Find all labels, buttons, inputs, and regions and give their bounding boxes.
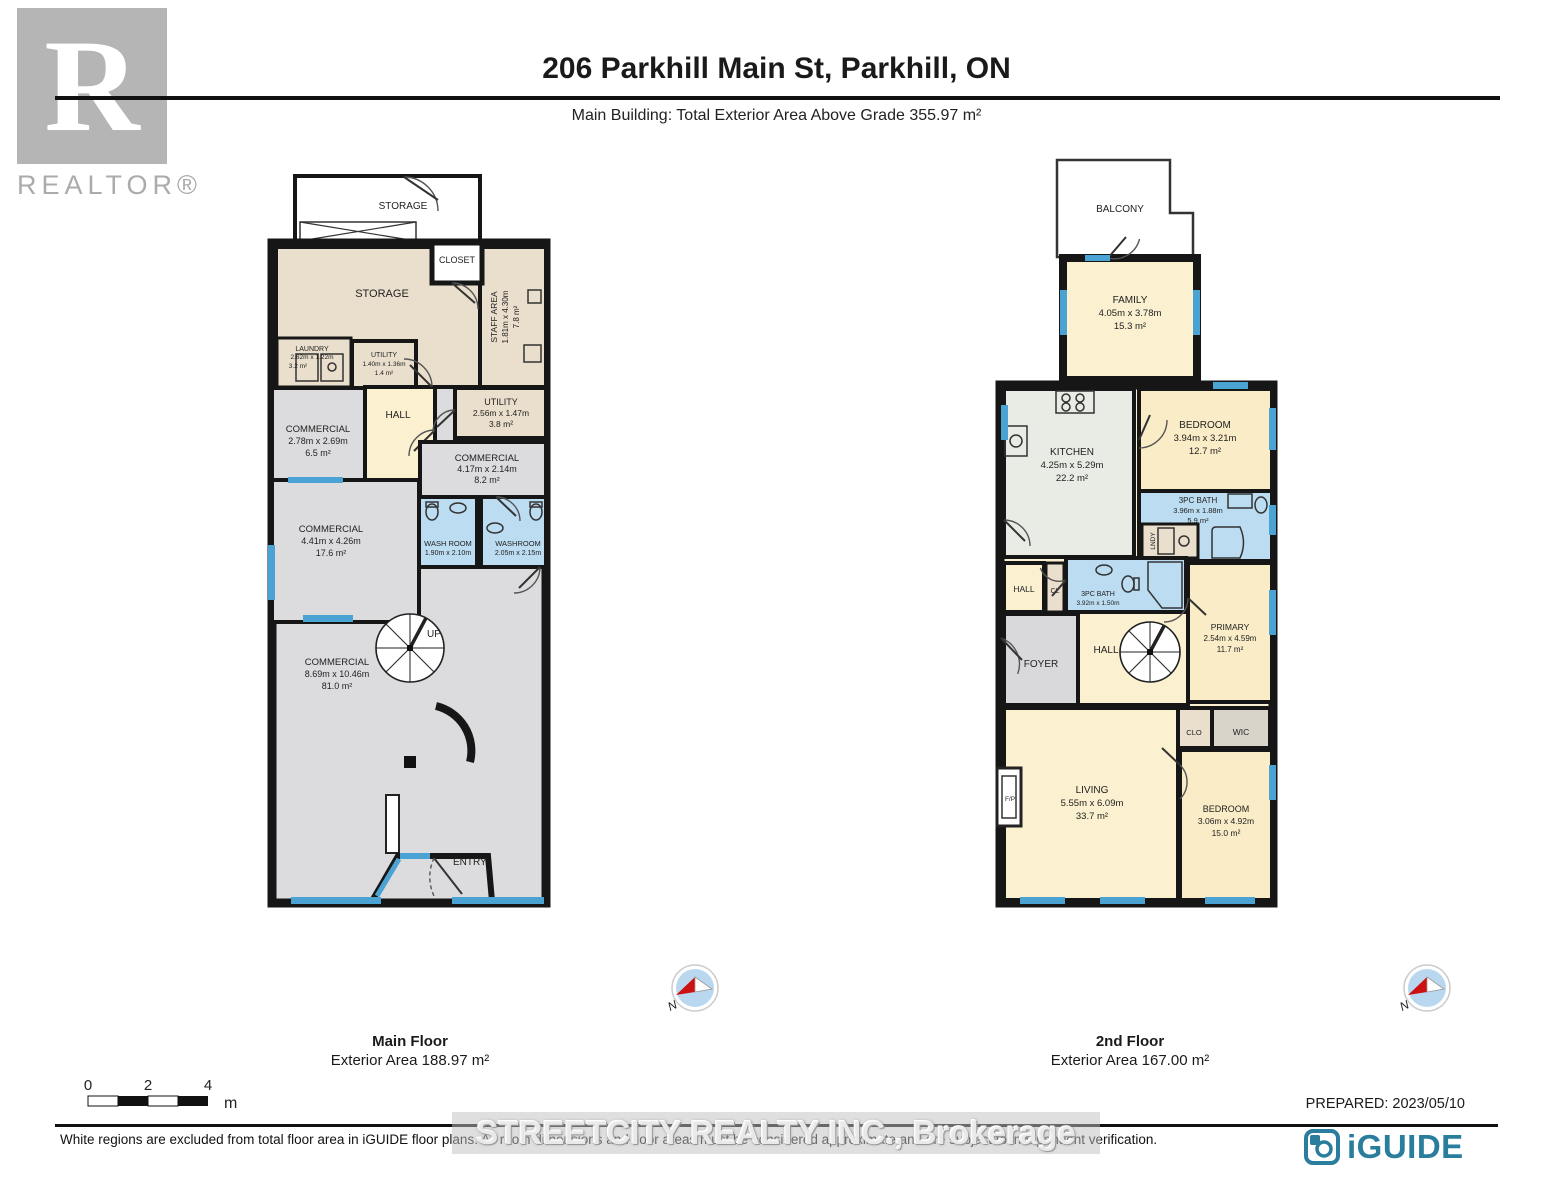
room-hall-small: HALL	[1004, 563, 1044, 612]
room-bath-1: 3PC BATH 3.96m x 1.88m 5.9 m² LNDY	[1139, 491, 1272, 561]
label-commercial-3-area: 17.6 m²	[316, 548, 347, 558]
label-bath-1-dims: 3.96m x 1.88m	[1173, 506, 1223, 515]
label-bedroom-1-area: 12.7 m²	[1189, 446, 1221, 457]
label-utility-small-area: 1.4 m²	[375, 370, 394, 377]
label-hall: HALL	[385, 410, 410, 421]
label-commercial-3: COMMERCIAL	[299, 524, 363, 535]
compass-second-floor: N	[1396, 962, 1456, 1020]
brokerage-watermark: STREETCITY REALTY INC., Brokerage	[452, 1112, 1100, 1154]
room-family: FAMILY 4.05m x 3.78m 15.3 m²	[1060, 233, 1200, 380]
label-bedroom-2: BEDROOM	[1203, 804, 1250, 814]
room-washroom-1: WASH ROOM 1.90m x 2.10m	[419, 497, 477, 567]
room-cl: CL	[1046, 563, 1064, 612]
label-kitchen-area: 22.2 m²	[1056, 473, 1088, 484]
room-washroom-2: WASHROOM 2.05m x 2.15m	[481, 497, 546, 567]
main-floor-caption: Main Floor Exterior Area 188.97 m²	[255, 1032, 565, 1070]
second-floor-area: Exterior Area 167.00 m²	[980, 1051, 1280, 1070]
label-storage: STORAGE	[355, 288, 409, 300]
label-laundry: LAUNDRY	[295, 346, 329, 353]
label-commercial-1: COMMERCIAL	[286, 424, 350, 435]
scale-bar: 0 2 4 m	[82, 1076, 252, 1120]
scale-tick-4: 4	[204, 1077, 212, 1094]
room-storage-exterior: STORAGE	[295, 176, 480, 243]
main-floor-area: Exterior Area 188.97 m²	[255, 1051, 565, 1070]
iguide-logo-word: iGUIDE	[1347, 1128, 1464, 1166]
label-primary: PRIMARY	[1211, 622, 1250, 632]
room-bedroom-2: BEDROOM 3.06m x 4.92m 15.0 m²	[1162, 748, 1272, 900]
label-family-area: 15.3 m²	[1114, 321, 1146, 332]
label-balcony: BALCONY	[1096, 204, 1144, 215]
second-floor-title: 2nd Floor	[980, 1032, 1280, 1051]
page-title: 206 Parkhill Main St, Parkhill, ON	[0, 52, 1553, 86]
room-bedroom-1: BEDROOM 3.94m x 3.21m 12.7 m²	[1139, 389, 1272, 491]
label-washroom-2-dims: 2.05m x 2.15m	[495, 550, 541, 557]
label-commercial-4: COMMERCIAL	[305, 657, 369, 668]
label-primary-dims: 2.54m x 4.59m	[1204, 634, 1257, 643]
label-laundry-area: 3.2 m²	[289, 363, 308, 370]
label-kitchen: KITCHEN	[1050, 447, 1094, 458]
compass-main-floor: N	[664, 962, 724, 1020]
spiral-stair-dn	[1120, 622, 1180, 682]
label-commercial-2: COMMERCIAL	[455, 453, 519, 464]
label-bath-2-dims: 3.92m x 1.50m	[1077, 600, 1120, 607]
room-balcony: BALCONY	[1057, 160, 1193, 257]
wall-stub	[386, 795, 399, 853]
label-primary-area: 11.7 m²	[1217, 645, 1244, 654]
label-bath-1: 3PC BATH	[1179, 496, 1218, 505]
label-entry: ENTRY	[453, 857, 487, 868]
label-utility: UTILITY	[484, 397, 518, 407]
label-staff-area-area: 7.8 m²	[512, 305, 521, 328]
second-floor-caption: 2nd Floor Exterior Area 167.00 m²	[980, 1032, 1280, 1070]
label-utility-area: 3.8 m²	[489, 419, 513, 429]
label-laundry-dims: 2.62m x 1.22m	[291, 354, 334, 361]
label-bedroom-1-dims: 3.94m x 3.21m	[1174, 433, 1237, 444]
room-commercial-2: COMMERCIAL 4.17m x 2.14m 8.2 m²	[420, 442, 546, 497]
room-hall-dn: HALL DN	[1078, 612, 1188, 705]
label-utility-small-dims: 1.40m x 1.36m	[363, 361, 406, 368]
label-utility-small: UTILITY	[371, 352, 397, 359]
main-floor-title: Main Floor	[255, 1032, 565, 1051]
room-laundry: LAUNDRY 2.62m x 1.22m 3.2 m²	[277, 338, 351, 387]
iguide-logo-icon	[1303, 1128, 1341, 1166]
label-commercial-2-area: 8.2 m²	[474, 475, 500, 485]
fireplace: F/P	[997, 768, 1021, 826]
label-foyer: FOYER	[1024, 659, 1058, 670]
label-utility-dims: 2.56m x 1.47m	[473, 408, 529, 418]
scale-tick-0: 0	[84, 1077, 92, 1094]
room-commercial-3: COMMERCIAL 4.41m x 4.26m 17.6 m²	[272, 480, 419, 622]
label-commercial-1-area: 6.5 m²	[305, 448, 331, 458]
iguide-logo: iGUIDE	[1303, 1128, 1464, 1166]
label-living-area: 33.7 m²	[1076, 811, 1108, 822]
label-living: LIVING	[1076, 785, 1109, 796]
label-clo: CLO	[1186, 728, 1202, 737]
label-family: FAMILY	[1113, 295, 1148, 306]
label-washroom-2: WASHROOM	[495, 539, 541, 548]
label-commercial-1-dims: 2.78m x 2.69m	[288, 436, 348, 446]
scale-tick-2: 2	[144, 1077, 152, 1094]
label-bedroom-1: BEDROOM	[1179, 420, 1231, 431]
room-clo: CLO	[1176, 708, 1212, 748]
realtor-logo: R REALTOR®	[17, 8, 202, 201]
room-utility-small: UTILITY 1.40m x 1.36m 1.4 m²	[352, 341, 416, 389]
label-stairs-up: UP	[427, 629, 441, 640]
scale-unit: m	[224, 1095, 237, 1112]
label-living-dims: 5.55m x 6.09m	[1061, 798, 1124, 809]
label-hall-dn: HALL	[1093, 645, 1118, 656]
second-floor-plan: BALCONY FAMILY 4.05m x 3.78m 15.3 m² KIT…	[985, 150, 1285, 920]
label-washroom-1-dims: 1.90m x 2.10m	[425, 550, 471, 557]
label-commercial-4-dims: 8.69m x 10.46m	[305, 669, 370, 679]
room-utility: UTILITY 2.56m x 1.47m 3.8 m²	[455, 388, 546, 438]
room-staff-area: STAFF AREA 1.81m x 4.30m 7.8 m²	[480, 247, 546, 387]
column	[404, 756, 416, 768]
room-foyer: FOYER	[991, 614, 1078, 705]
label-hall-small: HALL	[1013, 584, 1035, 594]
title-divider	[55, 96, 1500, 100]
label-washroom-1: WASH ROOM	[424, 539, 472, 548]
realtor-logo-word: REALTOR®	[17, 170, 202, 201]
label-bedroom-2-area: 15.0 m²	[1212, 828, 1241, 838]
room-lndy: LNDY	[1142, 524, 1198, 558]
spiral-stair-up	[376, 614, 444, 682]
page-subtitle: Main Building: Total Exterior Area Above…	[0, 107, 1553, 125]
main-floor-plan: STORAGE STORAGE STAFF AREA 1.81m x 4.30m…	[255, 150, 565, 920]
prepared-date: PREPARED: 2023/05/10	[1150, 1096, 1465, 1112]
label-storage-ext: STORAGE	[379, 201, 428, 212]
label-staff-area: STAFF AREA	[489, 291, 499, 343]
label-fireplace: F/P	[1005, 796, 1015, 803]
room-commercial-1: COMMERCIAL 2.78m x 2.69m 6.5 m²	[272, 388, 365, 480]
label-commercial-3-dims: 4.41m x 4.26m	[301, 536, 361, 546]
room-living: LIVING 5.55m x 6.09m 33.7 m² F/P	[997, 708, 1178, 900]
label-closet: CLOSET	[439, 255, 476, 265]
label-lndy: LNDY	[1150, 532, 1157, 550]
room-wic: WIC	[1212, 708, 1270, 748]
label-bedroom-2-dims: 3.06m x 4.92m	[1198, 816, 1254, 826]
label-staff-area-dims: 1.81m x 4.30m	[501, 290, 510, 343]
label-commercial-2-dims: 4.17m x 2.14m	[457, 464, 517, 474]
label-bath-2: 3PC BATH	[1081, 591, 1115, 598]
label-kitchen-dims: 4.25m x 5.29m	[1041, 460, 1104, 471]
label-commercial-4-area: 81.0 m²	[322, 681, 353, 691]
label-family-dims: 4.05m x 3.78m	[1099, 308, 1162, 319]
realtor-logo-mark: R	[17, 8, 167, 164]
label-wic: WIC	[1233, 727, 1250, 737]
room-kitchen: KITCHEN 4.25m x 5.29m 22.2 m²	[1004, 389, 1134, 557]
